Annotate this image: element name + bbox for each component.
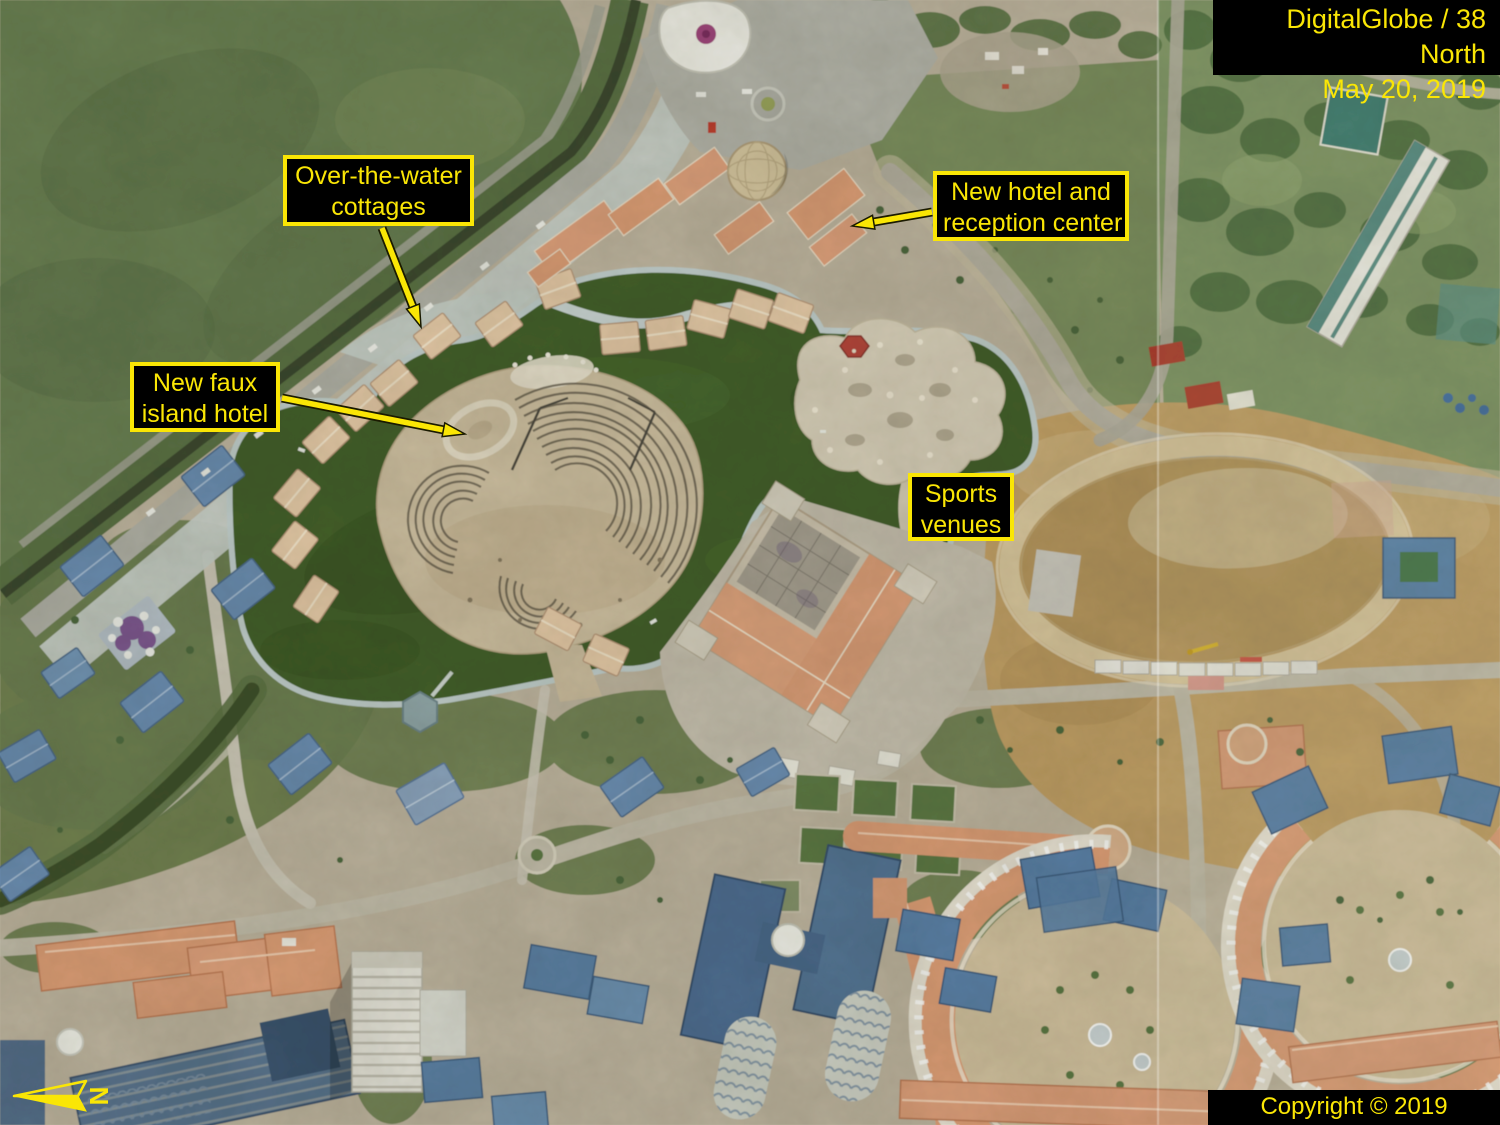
annotation-line: venues [918, 510, 1004, 541]
image-credit: DigitalGlobe / 38 North May 20, 2019 [1213, 0, 1500, 75]
copyright-notice: Copyright © 2019 DigitalGlobe [1208, 1090, 1500, 1125]
image-seam-tint [1158, 0, 1500, 1125]
north-label: N [84, 1087, 114, 1106]
copyright-text: Copyright © 2019 DigitalGlobe [1260, 1093, 1447, 1125]
satellite-map: N [0, 0, 1500, 1125]
annotation-over-the-water-cottages: Over-the-water cottages [283, 155, 474, 226]
annotation-new-hotel-and-reception-center: New hotel and reception center [933, 171, 1129, 241]
annotation-line: cottages [293, 192, 464, 223]
annotation-sports-venues: Sports venues [908, 473, 1014, 541]
annotation-new-faux-island-hotel: New faux island hotel [130, 362, 280, 432]
credit-date: May 20, 2019 [1213, 72, 1486, 107]
satellite-art [0, 0, 1500, 1125]
annotation-line: Over-the-water [293, 161, 464, 192]
annotation-line: New hotel and [943, 177, 1119, 208]
credit-source: DigitalGlobe / 38 North [1213, 2, 1486, 72]
annotation-line: Sports [918, 479, 1004, 510]
satellite-screenshot: N Over-the-water cottages New hotel and … [0, 0, 1500, 1125]
image-seam-line [1157, 0, 1159, 1125]
annotation-line: island hotel [140, 399, 270, 430]
annotation-line: reception center [943, 208, 1119, 239]
annotation-line: New faux [140, 368, 270, 399]
